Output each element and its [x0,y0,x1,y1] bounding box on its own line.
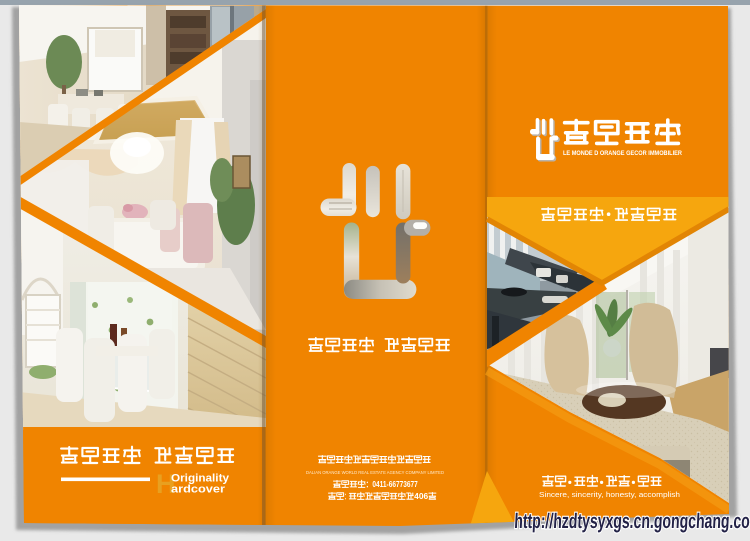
svg-text:：0411-66773677: ：0411-66773677 [366,480,418,489]
svg-text:LE MONDE D ORANGE GECOR IMMOBI: LE MONDE D ORANGE GECOR IMMOBILIER [563,150,682,157]
svg-text:406: 406 [414,492,429,501]
svg-text:Sincere, sincerity, honesty, a: Sincere, sincerity, honesty, accomplish [539,490,680,499]
svg-text:：: ： [344,492,348,501]
svg-text:DALIAN ORANGE WORLD REAL ESTAT: DALIAN ORANGE WORLD REAL ESTATE AGENCY C… [306,470,444,476]
svg-text:ardcover: ardcover [171,484,226,496]
svg-text:http://hzdtysyxgs.cn.gongchang: http://hzdtysyxgs.cn.gongchang.com [514,510,750,533]
